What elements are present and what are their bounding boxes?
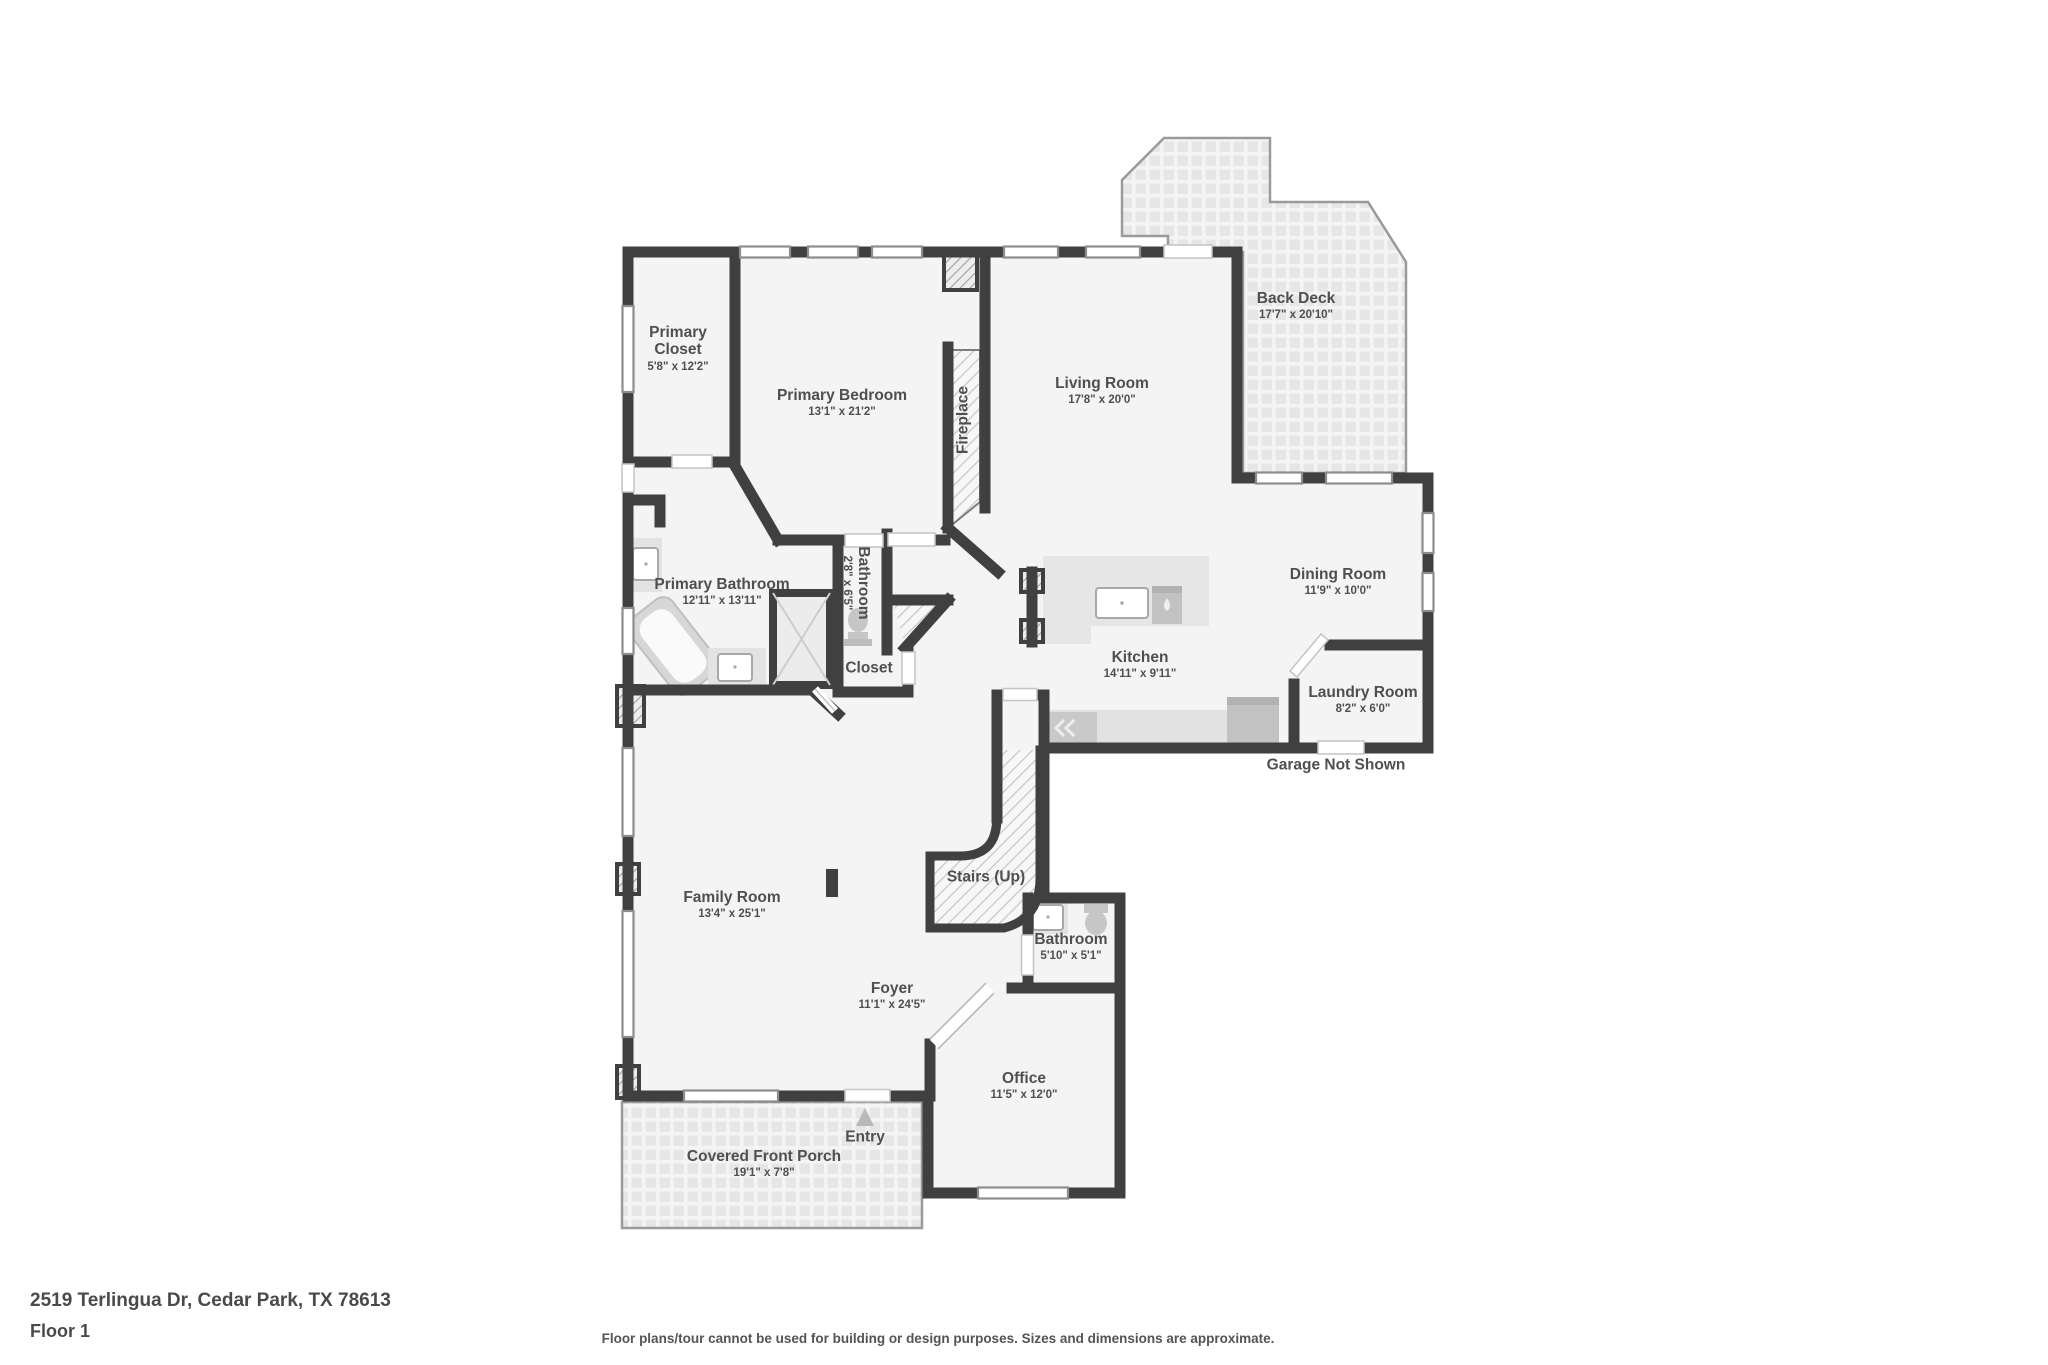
room-label-dining-room: Dining Room 11'9" x 10'0" [1290,566,1386,598]
room-label-bathroom: Bathroom 5'10" x 5'1" [1034,931,1107,963]
room-label-stairs: Stairs (Up) [947,868,1025,885]
room-label-back-deck: Back Deck 17'7" x 20'10" [1257,290,1335,322]
range-icon [1045,712,1097,744]
floor-plan-canvas [0,0,2048,1365]
room-label-kitchen: Kitchen 14'11" x 9'11" [1104,649,1177,681]
room-label-office: Office 11'5" x 12'0" [991,1070,1058,1102]
property-address: 2519 Terlingua Dr, Cedar Park, TX 78613 [30,1290,391,1312]
room-label-closet: Closet [845,659,892,676]
room-label-living-room: Living Room 17'8" x 20'0" [1055,375,1149,407]
disclaimer-text: Floor plans/tour cannot be used for buil… [602,1331,1275,1346]
vanity-sink-icon [708,648,766,686]
room-label-bathroom-small: Bathroom 2'8" x 6'5" [840,546,872,619]
room-label-laundry-room: Laundry Room 8'2" x 6'0" [1308,684,1417,716]
kitchen-sink-icon [1096,588,1148,618]
room-label-family-room: Family Room 13'4" x 25'1" [683,889,780,921]
garage-note-label: Garage Not Shown [1267,756,1406,773]
floor-label: Floor 1 [30,1321,90,1342]
room-label-fireplace: Fireplace [954,386,971,454]
room-label-primary-bathroom: Primary Bathroom 12'11" x 13'11" [654,576,789,608]
room-label-primary-closet: Primary Closet 5'8" x 12'2" [631,324,725,374]
refrigerator-icon [1227,697,1279,747]
dishwasher-icon [1152,586,1182,624]
room-label-foyer: Foyer 11'1" x 24'5" [859,980,926,1012]
wall-stub [826,869,838,897]
room-label-covered-front-porch: Covered Front Porch 19'1" x 7'8" [687,1148,841,1180]
room-label-primary-bedroom: Primary Bedroom 13'1" x 21'2" [777,387,907,419]
entry-label: Entry [845,1128,885,1145]
floor-plan-page: Primary Closet 5'8" x 12'2" Primary Bedr… [0,0,2048,1365]
